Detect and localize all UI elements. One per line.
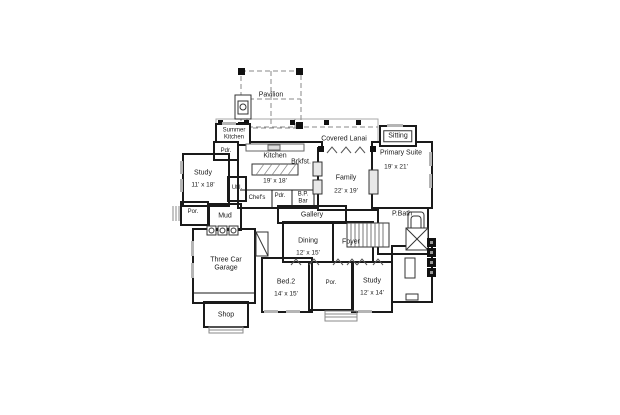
kitchen-island <box>252 164 298 175</box>
hall-closet <box>256 232 268 256</box>
grill-icon <box>235 95 251 119</box>
floorplan-canvas: Pavilion Summer Kitchen Covered Lanai Si… <box>0 0 620 415</box>
floorplan-linework <box>0 0 620 415</box>
kitchen-counter <box>246 144 304 151</box>
washer-dryer-icons <box>207 226 238 235</box>
closet-x-icon <box>406 228 428 250</box>
right-room-fixture <box>405 258 418 300</box>
stairs-icon <box>347 223 389 247</box>
